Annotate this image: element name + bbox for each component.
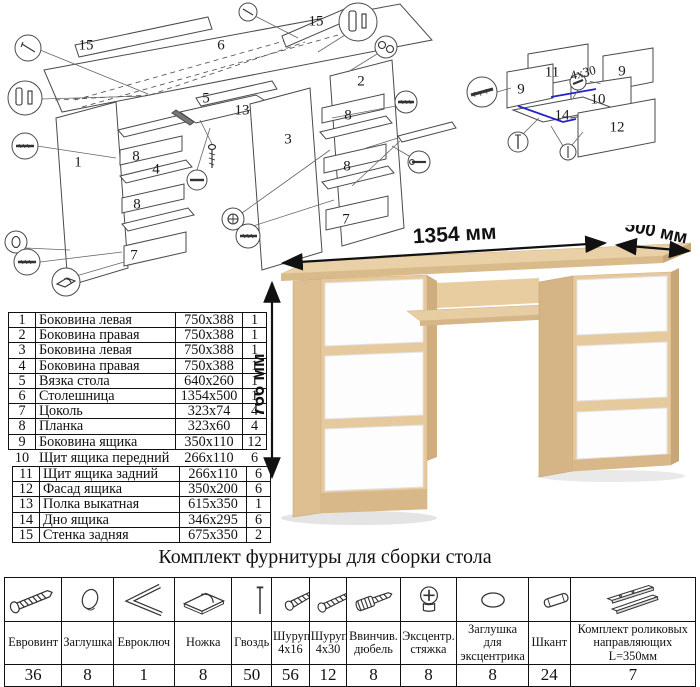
parts-list: 1Боковина левая750x38812Боковина правая7… bbox=[8, 312, 271, 543]
part-size: 346x295 bbox=[180, 512, 247, 527]
hardware-name: Шкант bbox=[528, 622, 570, 665]
hardware-qty: 8 bbox=[347, 664, 400, 686]
part-number-label: 9 bbox=[618, 64, 626, 81]
part-number-label: 8 bbox=[132, 149, 140, 166]
part-number-label: 8 bbox=[343, 159, 351, 176]
drawer-front bbox=[325, 425, 423, 491]
part-size: 323x74 bbox=[176, 404, 243, 419]
exploded-drawer-diagram: 4x30 1199101412 bbox=[455, 40, 700, 190]
part-num: 7 bbox=[9, 404, 36, 419]
part-num: 6 bbox=[9, 389, 36, 404]
page: { "exploded_main": { "labels": [ {"t":"1… bbox=[0, 0, 700, 677]
parts-row: 4Боковина правая750x3881 bbox=[9, 358, 267, 373]
part-size: 350x200 bbox=[180, 482, 247, 497]
screw-small-icon bbox=[272, 578, 310, 622]
hardware-name: Шуруп 4x16 bbox=[272, 622, 310, 665]
parts-row: 13Полка выкатная615x3501 bbox=[13, 497, 271, 512]
part-number-label: 6 bbox=[217, 38, 225, 55]
part-num: 5 bbox=[9, 373, 36, 388]
part-name: Фасад ящика bbox=[40, 482, 180, 497]
hardware-names-row: ЕвровинтЗаглушкаЕвроключНожкаГвоздьШуруп… bbox=[5, 622, 696, 665]
parts-row: 10Щит ящика передний266x1106 bbox=[9, 450, 267, 465]
hardware-name: Гвоздь bbox=[232, 622, 272, 665]
part-name: Столешница bbox=[36, 389, 176, 404]
part-number-label: 12 bbox=[610, 120, 625, 137]
hardware-qty-row: 36818505612888247 bbox=[5, 664, 696, 686]
part-num: 8 bbox=[9, 419, 36, 434]
part-number-label: 2 bbox=[357, 74, 365, 91]
drawer-front bbox=[325, 352, 423, 419]
drawer-front bbox=[577, 342, 667, 401]
parts-table-top: 1Боковина левая750x38812Боковина правая7… bbox=[8, 312, 267, 450]
hardware-qty: 56 bbox=[272, 664, 310, 686]
hexkey-icon bbox=[113, 578, 174, 622]
part-size: 266x110 bbox=[180, 467, 247, 482]
part-num: 14 bbox=[13, 512, 40, 527]
part-name: Щит ящика передний bbox=[36, 450, 176, 465]
part-number-label: 14 bbox=[555, 108, 570, 125]
part-num: 9 bbox=[9, 434, 36, 449]
niche-back-rail bbox=[437, 278, 539, 308]
part-name: Боковина правая bbox=[36, 358, 176, 373]
hardware-qty: 7 bbox=[570, 664, 695, 686]
hardware-qty: 1 bbox=[113, 664, 174, 686]
part-num: 10 bbox=[9, 450, 36, 465]
parts-row: 9Боковина ящика350x11012 bbox=[9, 434, 267, 449]
part-number-label: 15 bbox=[309, 14, 324, 31]
part-plank-8 bbox=[122, 184, 184, 213]
part-number-label: 9 bbox=[517, 82, 525, 99]
dowel-icon bbox=[528, 578, 570, 622]
part-num: 2 bbox=[9, 328, 36, 343]
hardware-name: Комплект роликовых направляющих L=350мм bbox=[570, 622, 695, 665]
cam-icon bbox=[400, 578, 457, 622]
part-name: Дно ящика bbox=[40, 512, 180, 527]
hardware-name: Эксцентр. стяжка bbox=[400, 622, 457, 665]
part-plank-8 bbox=[120, 136, 182, 165]
parts-row: 1Боковина левая750x3881 bbox=[9, 313, 267, 328]
part-name: Цоколь bbox=[36, 404, 176, 419]
part-size: 1354x500 bbox=[176, 389, 243, 404]
cap-icon bbox=[62, 578, 113, 622]
part-name: Вязка стола bbox=[36, 373, 176, 388]
part-name: Боковина правая bbox=[36, 328, 176, 343]
left-pedestal-plinth bbox=[321, 489, 427, 513]
parts-row: 3Боковина левая750x3881 bbox=[9, 343, 267, 358]
part-num: 4 bbox=[9, 358, 36, 373]
part-num: 3 bbox=[9, 343, 36, 358]
parts-table-bottom: 11Щит ящика задний266x110612Фасад ящика3… bbox=[12, 466, 271, 543]
part-num: 13 bbox=[13, 497, 40, 512]
cam-icon bbox=[228, 214, 238, 224]
dowel-screw-icon bbox=[347, 578, 400, 622]
part-number-label: 8 bbox=[344, 108, 352, 125]
part-name: Боковина левая bbox=[36, 313, 176, 328]
hardware-title: Комплект фурнитуры для сборки стола bbox=[0, 546, 650, 569]
dim-height-label: 766 мм bbox=[255, 353, 268, 416]
screw-long-icon bbox=[309, 578, 347, 622]
part-number-label: 7 bbox=[130, 248, 138, 265]
part-name: Планка bbox=[36, 419, 176, 434]
hardware-qty: 50 bbox=[232, 664, 272, 686]
left-pedestal-side bbox=[293, 279, 321, 517]
parts-row: 11Щит ящика задний266x1106 bbox=[13, 467, 271, 482]
slides-icon bbox=[570, 578, 695, 622]
part-num: 1 bbox=[9, 313, 36, 328]
part-size: 350x110 bbox=[176, 434, 243, 449]
part-num: 15 bbox=[13, 527, 40, 542]
parts-row: 12Фасад ящика350x2006 bbox=[13, 482, 271, 497]
part-size: 675x350 bbox=[180, 527, 247, 542]
dim-depth-label: 500 мм bbox=[623, 225, 689, 248]
parts-row: 7Цоколь323x744 bbox=[9, 404, 267, 419]
part-name: Боковина ящика bbox=[36, 434, 176, 449]
hardware-qty: 8 bbox=[457, 664, 529, 686]
part-name: Щит ящика задний bbox=[40, 467, 180, 482]
part-number-label: 5 bbox=[202, 91, 210, 108]
parts-row: 5Вязка стола640x2601 bbox=[9, 373, 267, 388]
part-size: 266x110 bbox=[176, 450, 243, 465]
drawer-front bbox=[577, 276, 667, 335]
hardware-name: Шуруп 4x30 bbox=[309, 622, 347, 665]
hardware-name: Ввинчив. дюбель bbox=[347, 622, 400, 665]
right-pedestal-side bbox=[539, 276, 573, 477]
niche-left-side bbox=[427, 275, 437, 461]
nail-icon bbox=[232, 578, 272, 622]
parts-row: 6Столешница1354x5001 bbox=[9, 389, 267, 404]
drawer-front bbox=[577, 408, 667, 459]
part-number-label: 11 bbox=[545, 65, 559, 82]
hardware-qty: 36 bbox=[5, 664, 62, 686]
foot-icon bbox=[175, 578, 232, 622]
parts-row: 8Планка323x604 bbox=[9, 419, 267, 434]
part-size: 750x388 bbox=[176, 313, 243, 328]
hardware-table: ЕвровинтЗаглушкаЕвроключНожкаГвоздьШуруп… bbox=[4, 577, 696, 687]
euroscrew-icon bbox=[5, 578, 62, 622]
parts-row: 14Дно ящика346x2956 bbox=[13, 512, 271, 527]
part-size: 750x388 bbox=[176, 358, 243, 373]
part-number-label: 1 bbox=[74, 155, 82, 172]
part-number-label: 10 bbox=[591, 92, 606, 109]
part-size: 640x260 bbox=[176, 373, 243, 388]
hardware-name: Заглушка bbox=[62, 622, 113, 665]
right-pedestal-edge bbox=[671, 268, 679, 465]
hardware-icons-row bbox=[5, 578, 696, 622]
part-name: Полка выкатная bbox=[40, 497, 180, 512]
part-num: 11 bbox=[13, 467, 40, 482]
part-number-label: 4 bbox=[152, 162, 160, 179]
screw-icon bbox=[209, 145, 216, 169]
desk-render-svg: 1354 мм 500 мм 766 мм bbox=[255, 225, 700, 545]
part-size: 615x350 bbox=[180, 497, 247, 512]
hardware-name: Евровинт bbox=[5, 622, 62, 665]
part-number-label: 15 bbox=[79, 38, 94, 55]
hardware-name: Евроключ bbox=[113, 622, 174, 665]
part-slide-rail-4 bbox=[398, 122, 456, 142]
parts-table-middle: 10Щит ящика передний266x1106 bbox=[8, 450, 267, 466]
part-number-label: 3 bbox=[284, 132, 292, 149]
hardware-qty: 12 bbox=[309, 664, 347, 686]
exploded-drawer-svg bbox=[455, 40, 700, 190]
part-size: 750x388 bbox=[176, 343, 243, 358]
part-name: Стенка задняя bbox=[40, 527, 180, 542]
desk-render: 1354 мм 500 мм 766 мм bbox=[255, 225, 700, 545]
part-size: 750x388 bbox=[176, 328, 243, 343]
part-number-label: 13 bbox=[235, 103, 250, 120]
hardware-qty: 8 bbox=[175, 664, 232, 686]
part-name: Боковина левая bbox=[36, 343, 176, 358]
parts-row: 15Стенка задняя675x3502 bbox=[13, 527, 271, 542]
part-num: 12 bbox=[13, 482, 40, 497]
dim-width-label: 1354 мм bbox=[412, 225, 497, 248]
hardware-name: Ножка bbox=[175, 622, 232, 665]
hardware-qty: 8 bbox=[62, 664, 113, 686]
hardware-qty: 8 bbox=[400, 664, 457, 686]
part-number-label: 8 bbox=[133, 197, 141, 214]
hardware-qty: 24 bbox=[528, 664, 570, 686]
drawer-front bbox=[325, 279, 423, 346]
part-size: 323x60 bbox=[176, 419, 243, 434]
parts-row: 2Боковина правая750x3881 bbox=[9, 328, 267, 343]
hardware-name: Заглушка для эксцентрика bbox=[457, 622, 529, 665]
cam-cap-icon bbox=[457, 578, 529, 622]
